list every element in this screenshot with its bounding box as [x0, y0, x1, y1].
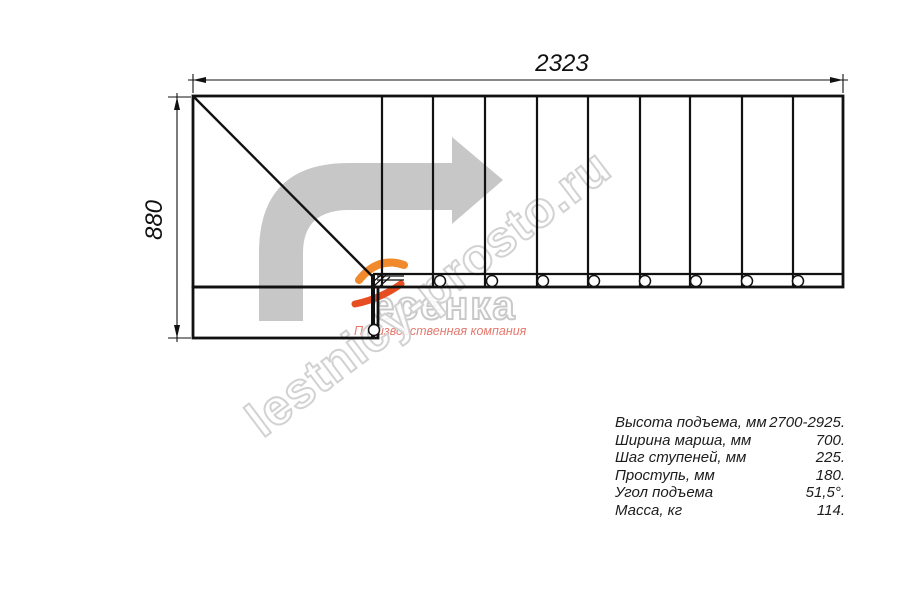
dimension-width — [188, 74, 848, 93]
spec-label: Шаг ступеней, мм — [615, 449, 746, 467]
spec-label: Высота подъема, мм — [615, 414, 767, 432]
spec-label: Масса, кг — [615, 502, 682, 520]
spec-row: Высота подъема, мм 2700-2925. — [615, 414, 845, 432]
tread-lines — [382, 96, 793, 287]
spec-row: Масса, кг 114. — [615, 502, 845, 520]
spec-row: Проступь, мм 180. — [615, 467, 845, 485]
staircase-drawing-page: есенка Производственная компания lestnic… — [0, 0, 900, 600]
spec-row: Ширина марша, мм 700. — [615, 432, 845, 450]
dimension-height — [168, 93, 191, 342]
dim-width-label: 2323 — [534, 50, 589, 77]
corner-hatch-marks — [374, 275, 404, 287]
spec-value: 51,5°. — [806, 484, 845, 502]
spec-value: 2700-2925. — [769, 414, 845, 432]
spec-value: 700. — [816, 432, 845, 450]
spec-label: Угол подъема — [615, 484, 713, 502]
spec-value: 225. — [816, 449, 845, 467]
spec-value: 180. — [816, 467, 845, 485]
lower-landing-outline — [193, 287, 378, 338]
specs-table: Высота подъема, мм 2700-2925. Ширина мар… — [615, 414, 845, 520]
spec-label: Проступь, мм — [615, 467, 715, 485]
spec-row: Шаг ступеней, мм 225. — [615, 449, 845, 467]
spec-label: Ширина марша, мм — [615, 432, 751, 450]
spec-value: 114. — [817, 502, 845, 520]
winder-diagonal-line — [194, 97, 372, 276]
dim-height-label: 880 — [141, 199, 168, 240]
main-flight-outline — [193, 96, 843, 287]
spec-row: Угол подъема 51,5°. — [615, 484, 845, 502]
